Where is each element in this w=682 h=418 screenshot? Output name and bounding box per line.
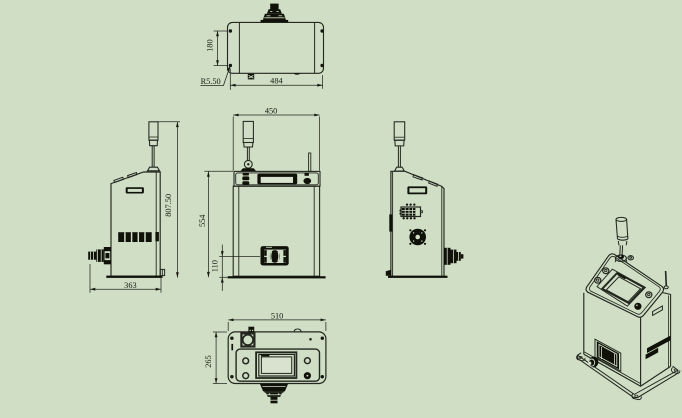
svg-text:110: 110 — [210, 260, 219, 272]
svg-text:450: 450 — [265, 106, 277, 115]
svg-text:554: 554 — [198, 214, 207, 227]
svg-text:265: 265 — [204, 355, 213, 367]
svg-text:484: 484 — [270, 77, 283, 86]
svg-text:180: 180 — [206, 39, 215, 51]
svg-text:510: 510 — [271, 311, 283, 320]
svg-text:R5.50: R5.50 — [201, 77, 221, 86]
svg-text:363: 363 — [124, 281, 136, 290]
svg-text:807.50: 807.50 — [164, 194, 173, 217]
